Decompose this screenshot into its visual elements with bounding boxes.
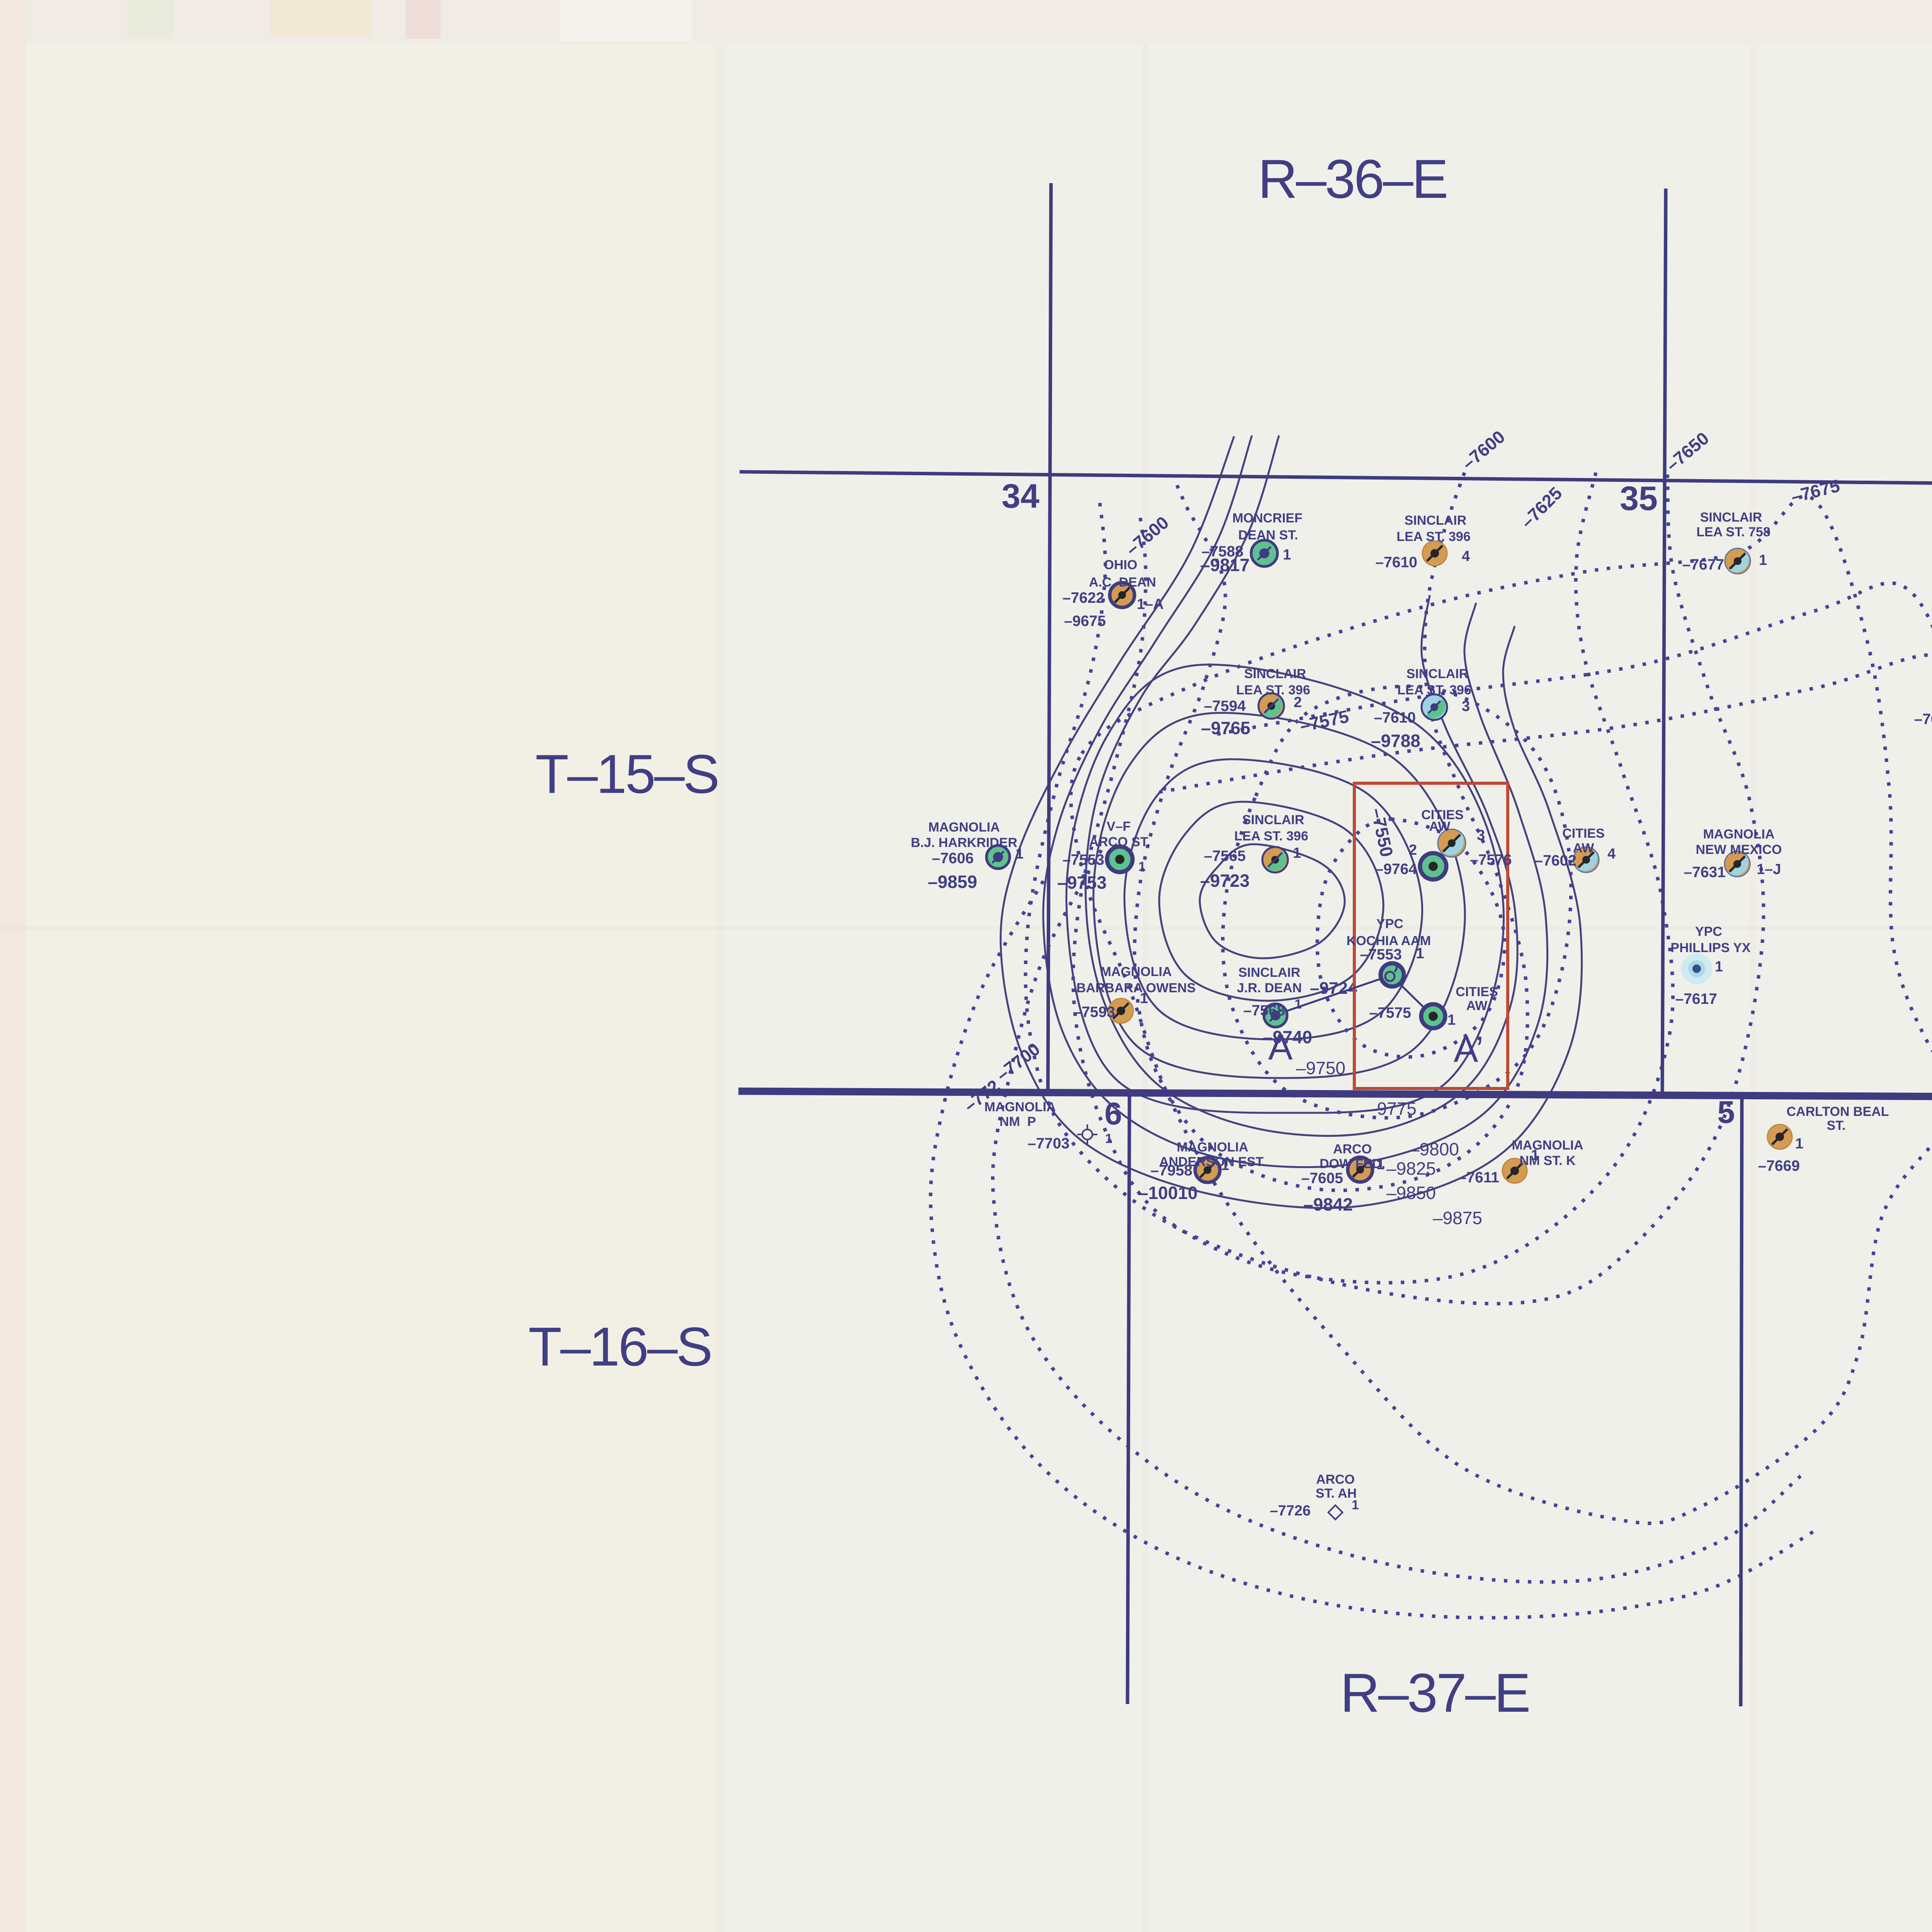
svg-text:–9765: –9765 <box>1201 718 1250 738</box>
svg-text:T–15–S: T–15–S <box>535 743 718 805</box>
svg-text:T–16–S: T–16–S <box>528 1316 711 1378</box>
svg-text:LEA ST. 396: LEA ST. 396 <box>1397 683 1471 697</box>
svg-text:–7726: –7726 <box>1270 1503 1311 1519</box>
svg-text:A.C. DEAN: A.C. DEAN <box>1089 575 1156 590</box>
svg-text:SINCLAIR: SINCLAIR <box>1244 667 1306 681</box>
svg-text:MAGNOLIA: MAGNOLIA <box>1177 1140 1248 1155</box>
svg-text:–7606: –7606 <box>932 850 974 867</box>
svg-text:–9825: –9825 <box>1386 1158 1436 1179</box>
svg-text:–7622: –7622 <box>1063 590 1104 606</box>
svg-text:–9800: –9800 <box>1410 1139 1459 1159</box>
svg-text:MAGNOLIA: MAGNOLIA <box>1100 964 1172 979</box>
svg-text:ST.: ST. <box>1827 1118 1845 1133</box>
svg-text:R–37–E: R–37–E <box>1340 1662 1529 1724</box>
svg-text:1: 1 <box>1294 997 1302 1012</box>
svg-text:–7610: –7610 <box>1376 554 1417 571</box>
svg-text:2: 2 <box>1294 694 1302 711</box>
svg-text:–7553: –7553 <box>1360 946 1402 963</box>
svg-text:SINCLAIR: SINCLAIR <box>1700 510 1762 525</box>
svg-text:1: 1 <box>1283 547 1291 563</box>
svg-text:SINCLAIR: SINCLAIR <box>1242 813 1304 827</box>
svg-text:5: 5 <box>1717 1095 1735 1130</box>
svg-text:3: 3 <box>1462 698 1470 714</box>
svg-text:1: 1 <box>1105 1131 1112 1146</box>
svg-text:–9775: –9775 <box>1367 1099 1417 1119</box>
svg-text:–7576: –7576 <box>1470 852 1512 868</box>
svg-text:YPC: YPC <box>1376 917 1403 931</box>
svg-text:–7565: –7565 <box>1204 848 1246 864</box>
svg-text:OHIO: OHIO <box>1104 558 1138 572</box>
svg-text:MAGNOLIA: MAGNOLIA <box>928 820 1000 835</box>
svg-text:–9842: –9842 <box>1303 1194 1353 1214</box>
svg-text:–7602: –7602 <box>1535 852 1577 869</box>
svg-text:1: 1 <box>1293 845 1301 861</box>
svg-text:–7593: –7593 <box>1073 1004 1115 1020</box>
svg-text:34: 34 <box>1002 477 1039 515</box>
svg-text:6: 6 <box>1104 1096 1122 1131</box>
svg-text:1: 1 <box>1140 990 1148 1007</box>
svg-text:LEA ST. 396: LEA ST. 396 <box>1234 829 1308 844</box>
svg-text:1: 1 <box>1759 552 1767 568</box>
svg-text:–7553: –7553 <box>1063 852 1104 868</box>
svg-text:–7610: –7610 <box>1374 709 1416 726</box>
svg-text:–10010: –10010 <box>1138 1183 1198 1203</box>
svg-text:NEW MEXICO: NEW MEXICO <box>1696 842 1782 857</box>
svg-text:1: 1 <box>1795 1136 1803 1152</box>
svg-text:–9788: –9788 <box>1371 731 1420 751</box>
svg-text:35: 35 <box>1620 479 1658 517</box>
svg-text:LEA ST. 396: LEA ST. 396 <box>1396 529 1470 544</box>
svg-text:DOW FED.: DOW FED. <box>1320 1156 1385 1171</box>
svg-text:1: 1 <box>1221 1157 1229 1173</box>
svg-text:BARBARA OWENS: BARBARA OWENS <box>1077 981 1196 995</box>
svg-text:CARLTON BEAL: CARLTON BEAL <box>1786 1104 1889 1119</box>
svg-text:YPC: YPC <box>1695 924 1722 939</box>
svg-text:–7703: –7703 <box>1028 1135 1070 1152</box>
svg-text:1–J: 1–J <box>1757 861 1781 878</box>
svg-text:–9859: –9859 <box>928 872 977 892</box>
svg-text:CITIES: CITIES <box>1456 985 1498 999</box>
svg-text:1: 1 <box>1138 859 1146 874</box>
svg-text:–9875: –9875 <box>1433 1208 1482 1228</box>
svg-text:–7594: –7594 <box>1204 698 1246 714</box>
svg-text:–7677: –7677 <box>1682 556 1724 573</box>
svg-text:PHILLIPS YX: PHILLIPS YX <box>1670 940 1751 955</box>
svg-text:1: 1 <box>1531 1147 1539 1163</box>
svg-text:–7575: –7575 <box>1369 1005 1411 1021</box>
svg-text:–7588: –7588 <box>1202 543 1243 560</box>
svg-text:–7605: –7605 <box>1301 1170 1343 1187</box>
svg-text:3: 3 <box>1477 827 1485 844</box>
svg-text:1: 1 <box>1376 1156 1384 1173</box>
svg-text:–7669: –7669 <box>1758 1158 1800 1174</box>
svg-text:V–F: V–F <box>1107 819 1131 834</box>
svg-text:ARCO: ARCO <box>1333 1142 1372 1156</box>
svg-text:AW: AW <box>1429 819 1451 834</box>
svg-text:ARCO: ARCO <box>1316 1472 1355 1487</box>
svg-text:–7958: –7958 <box>1151 1162 1192 1179</box>
svg-text:–7617: –7617 <box>1675 991 1717 1007</box>
svg-text:B.J. HARKRIDER: B.J. HARKRIDER <box>911 835 1017 850</box>
svg-text:–9850: –9850 <box>1386 1183 1436 1203</box>
svg-text:–9723: –9723 <box>1200 871 1250 891</box>
svg-text:R–36–E: R–36–E <box>1258 148 1447 210</box>
svg-text:1: 1 <box>1015 846 1024 862</box>
svg-text:MAGNOLIA: MAGNOLIA <box>1703 827 1774 842</box>
svg-text:–9764: –9764 <box>1375 861 1417 878</box>
svg-text:–7657: –7657 <box>1914 711 1932 728</box>
svg-text:A’: A’ <box>1454 1029 1483 1070</box>
svg-text:J.R. DEAN: J.R. DEAN <box>1237 981 1302 995</box>
svg-text:SINCLAIR: SINCLAIR <box>1406 667 1469 681</box>
svg-text:1–A: 1–A <box>1137 596 1164 612</box>
svg-text:1: 1 <box>1416 945 1424 962</box>
svg-text:–7611: –7611 <box>1458 1169 1499 1186</box>
svg-text:–9753: –9753 <box>1057 872 1107 893</box>
svg-text:NM P: NM P <box>1000 1114 1036 1129</box>
svg-text:DEAN ST.: DEAN ST. <box>1238 528 1298 543</box>
svg-text:MONCRIEF: MONCRIEF <box>1232 511 1302 526</box>
svg-text:–9675: –9675 <box>1064 613 1106 629</box>
svg-text:4: 4 <box>1607 846 1616 862</box>
svg-text:–7631: –7631 <box>1684 864 1726 881</box>
svg-text:4: 4 <box>1462 548 1470 565</box>
svg-text:ST. AH: ST. AH <box>1316 1486 1357 1501</box>
svg-text:SINCLAIR: SINCLAIR <box>1405 513 1467 528</box>
svg-text:A: A <box>1268 1027 1293 1068</box>
svg-text:MAGNOLIA: MAGNOLIA <box>1512 1138 1583 1153</box>
svg-text:SINCLAIR: SINCLAIR <box>1238 965 1301 980</box>
svg-text:CITIES: CITIES <box>1562 826 1605 841</box>
svg-text:LEA ST. 758: LEA ST. 758 <box>1696 525 1770 539</box>
svg-text:2: 2 <box>1409 842 1417 858</box>
svg-text:NM ST. K: NM ST. K <box>1519 1153 1576 1168</box>
svg-text:AW: AW <box>1466 998 1488 1013</box>
svg-text:1: 1 <box>1447 1012 1456 1028</box>
svg-text:–7568: –7568 <box>1243 1002 1285 1019</box>
svg-text:1: 1 <box>1715 959 1723 975</box>
svg-text:ARCO ST.: ARCO ST. <box>1089 835 1151 849</box>
svg-text:MAGNOLIA: MAGNOLIA <box>984 1100 1056 1114</box>
svg-text:1: 1 <box>1352 1498 1359 1512</box>
svg-text:–9750: –9750 <box>1296 1058 1345 1078</box>
